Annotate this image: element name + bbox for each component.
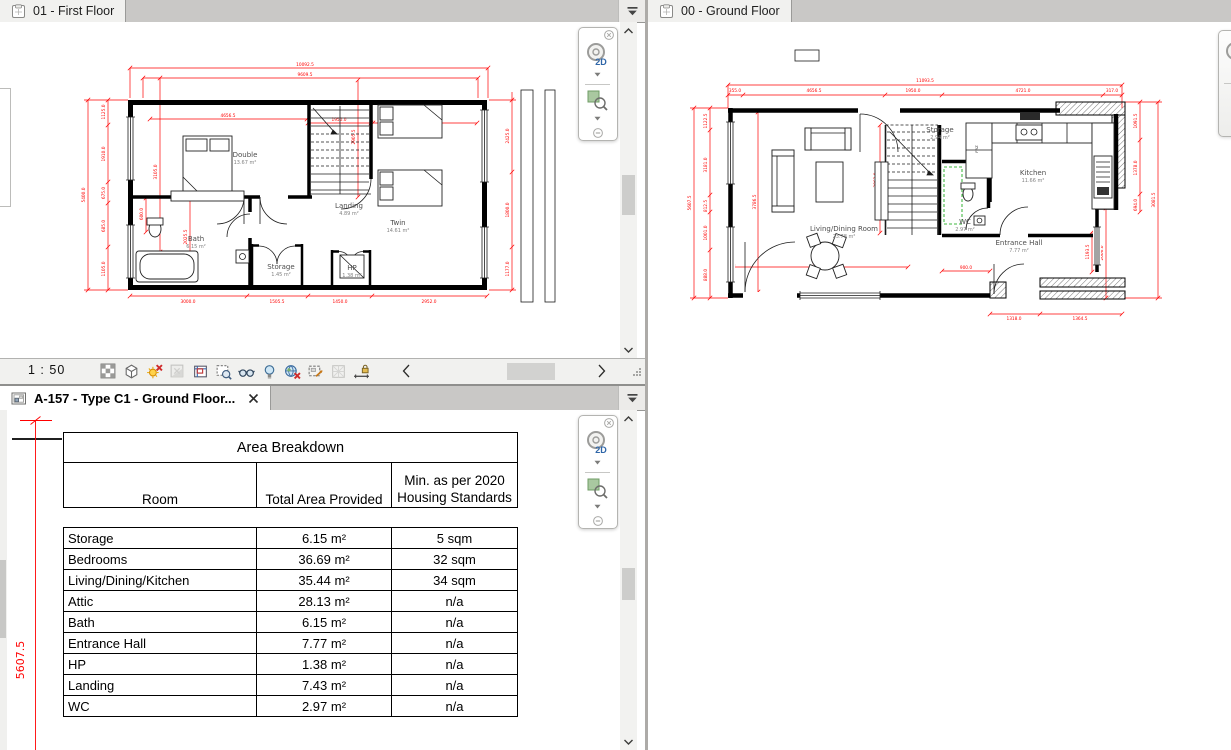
scroll-thumb[interactable]	[622, 175, 635, 215]
room-area: 4.89 m²	[339, 211, 359, 217]
pan-left-icon[interactable]	[402, 364, 410, 378]
navbar-close-icon[interactable]	[604, 30, 614, 40]
room-label: Storage	[926, 126, 953, 134]
view-tab-menu-button[interactable]	[618, 386, 645, 410]
steering-wheel-2d-icon[interactable]: 2D	[584, 41, 611, 68]
temporary-hide-isolate-icon[interactable]	[238, 363, 255, 380]
detail-level-icon[interactable]	[100, 363, 117, 380]
room-label: Entrance Hall	[995, 239, 1042, 247]
room-label: Twin	[389, 219, 405, 227]
dim-text: 4656.5	[220, 113, 235, 119]
dim-text: 1450.0	[332, 299, 347, 305]
tab-label: A-157 - Type C1 - Ground Floor...	[34, 391, 235, 406]
tab-list-icon	[627, 393, 638, 403]
navbar-separator	[585, 472, 610, 473]
col-header-min: Min. as per 2020 Housing Standards	[392, 463, 518, 508]
tab-first-floor[interactable]: 01 - First Floor	[0, 0, 126, 22]
room-area: 11.66 m²	[1022, 178, 1045, 184]
tab-list-icon	[627, 6, 638, 16]
dim-text: 2425.0	[505, 128, 511, 143]
tab-label: 00 - Ground Floor	[681, 4, 780, 18]
room-label: Living/Dining Room	[810, 225, 878, 233]
dim-text: 3081.5	[1151, 192, 1157, 207]
reveal-hidden-elements-icon[interactable]	[261, 363, 278, 380]
dim-text: 812.5	[703, 200, 709, 213]
dim-text: 3786.5	[752, 194, 758, 209]
reveal-constraints-icon[interactable]	[353, 363, 370, 380]
hidden-panel-edge	[0, 88, 11, 207]
col-header-room: Room	[64, 463, 257, 508]
dim-text: 1001.0	[703, 225, 709, 240]
wheel-menu-caret-icon[interactable]	[594, 72, 601, 77]
room-label: Bath	[188, 235, 204, 243]
area-breakdown-header-table: Area Breakdown Room Total Area Provided …	[63, 432, 518, 508]
floor-plan-view-icon	[659, 4, 674, 19]
room-area: 13.67 m²	[234, 160, 257, 166]
table-row: WC 2.97 m² n/a	[64, 696, 518, 717]
dim-text: 11093.5	[916, 78, 934, 84]
area-breakdown-body-table: Storage 6.15 m² 5 sqm Bedrooms 36.69 m² …	[63, 527, 518, 717]
resize-grip-icon[interactable]	[632, 367, 642, 377]
ground-floor-tabbar: 00 - Ground Floor	[648, 0, 1231, 23]
dim-text: 1122.5	[703, 113, 709, 128]
dim-text: 3181.0	[703, 157, 709, 172]
scroll-up-icon[interactable]	[620, 22, 637, 39]
dim-text: 888.0	[703, 269, 709, 282]
dim-text: 1950.0	[905, 88, 920, 94]
room-area: 14.61 m²	[387, 228, 410, 234]
dim-text: 3105.0	[153, 164, 159, 179]
table-row: Bath 6.15 m² n/a	[64, 612, 518, 633]
dim-text: 317.0	[1106, 88, 1119, 94]
navbar-separator	[585, 84, 610, 85]
sheet-view-icon	[11, 391, 27, 406]
table-row: Attic 28.13 m² n/a	[64, 591, 518, 612]
floor-plan-view-icon	[11, 4, 26, 19]
table-row: Landing 7.43 m² n/a	[64, 675, 518, 696]
dim-text: 900.0	[960, 265, 973, 271]
room-area: 7.77 m²	[1009, 248, 1029, 254]
table-row: Living/Dining/Kitchen 35.44 m² 34 sqm	[64, 570, 518, 591]
zoom-menu-caret-icon[interactable]	[594, 116, 601, 121]
dim-text: 1193.5	[1085, 244, 1091, 259]
crop-view-icon[interactable]	[192, 363, 209, 380]
dim-text: 1177.0	[505, 261, 511, 276]
scroll-thumb[interactable]	[622, 568, 635, 600]
ground-floor-plan-drawing: .wl2{stroke:#000;fill:none} .tn2{stroke:…	[648, 22, 1231, 750]
ground-floor-canvas[interactable]: .wl2{stroke:#000;fill:none} .tn2{stroke:…	[648, 22, 1231, 750]
room-label: HP	[347, 264, 357, 272]
dim-text: 10092.5	[296, 62, 314, 68]
dim-text: 685.0	[101, 220, 107, 233]
zoom-region-icon[interactable]	[587, 478, 608, 499]
zoom-menu-caret-icon[interactable]	[594, 504, 601, 509]
pan-right-icon[interactable]	[598, 364, 606, 378]
wheel-menu-caret-icon[interactable]	[594, 460, 601, 465]
first-floor-tabbar: 01 - First Floor	[0, 0, 645, 23]
navbar-collapse-icon[interactable]	[593, 516, 603, 526]
room-area: 2.97 m²	[955, 227, 975, 233]
sheet-vscrollbar[interactable]	[620, 410, 637, 750]
navbar-collapse-icon[interactable]	[593, 128, 603, 138]
sheet-tabbar: A-157 - Type C1 - Ground Floor...	[0, 386, 645, 411]
dim-text: 1091.5	[1133, 113, 1139, 128]
scroll-down-icon[interactable]	[620, 733, 637, 750]
dim-text: 5400.0	[81, 187, 87, 202]
steering-wheel-2d-icon[interactable]: 2D	[584, 429, 611, 456]
room-area: 1.38 m²	[342, 273, 362, 279]
room-label: WC	[959, 218, 971, 226]
table-title: Area Breakdown	[64, 433, 518, 463]
svg-text:2D: 2D	[595, 445, 607, 455]
sheet-dim-text: 5607.5	[14, 641, 27, 680]
navigation-bar-partial[interactable]	[1218, 30, 1231, 137]
scroll-up-icon[interactable]	[620, 410, 637, 427]
col-header-total: Total Area Provided	[257, 463, 392, 508]
first-floor-vscrollbar[interactable]	[620, 22, 637, 358]
navbar-separator	[1224, 83, 1231, 84]
fridge-label: FRZ	[974, 145, 979, 153]
table-row: Entrance Hall 7.77 m² n/a	[64, 633, 518, 654]
dim-text: 1378.0	[1133, 160, 1139, 175]
table-row: HP 1.38 m² n/a	[64, 654, 518, 675]
steering-wheel-2d-icon	[1219, 39, 1231, 79]
dim-text: 9609.5	[297, 72, 312, 78]
room-area: 23.78 m²	[833, 234, 856, 240]
shadows-icon[interactable]	[169, 363, 186, 380]
background-window-scrollbar	[0, 410, 7, 750]
room-area: 1.45 m²	[271, 272, 291, 278]
view-tab-menu-button[interactable]	[618, 0, 645, 22]
view-control-bar: 1 : 50	[0, 358, 645, 384]
dim-text: 1318.0	[1006, 316, 1021, 322]
first-floor-plan-drawing: .wl{stroke:#000;fill:none} .tn{stroke:#1…	[0, 22, 620, 358]
dim-text: 355.0	[729, 88, 742, 94]
room-label: Storage	[267, 263, 294, 271]
hscroll-thumb[interactable]	[507, 363, 555, 380]
room-area: 6.15 m²	[186, 244, 206, 250]
room-label: Kitchen	[1020, 169, 1046, 177]
temporary-view-properties-icon[interactable]	[307, 363, 324, 380]
table-row: Storage 6.15 m² 5 sqm	[64, 528, 518, 549]
dim-text: 3000.0	[180, 299, 195, 305]
revit-workspace: 01 - First Floor .wl{stroke:#000;fill:no…	[0, 0, 1231, 750]
tab-label: 01 - First Floor	[33, 4, 114, 18]
room-label: Landing	[335, 202, 363, 210]
analytical-model-icon[interactable]	[330, 363, 347, 380]
tab-close-icon[interactable]	[248, 393, 259, 404]
panel-ground-floor: 00 - Ground Floor .wl2{stroke:#000;fill:…	[648, 0, 1231, 750]
background-scroll-thumb	[0, 560, 6, 638]
worksharing-display-icon[interactable]	[284, 363, 301, 380]
dim-text: 1125.0	[101, 104, 107, 119]
dim-text: 694.0	[1133, 199, 1139, 212]
visual-style-icon[interactable]	[123, 363, 140, 380]
zoom-region-icon[interactable]	[587, 90, 608, 111]
table-row: Bedrooms 36.69 m² 32 sqm	[64, 549, 518, 570]
room-label: Double	[233, 151, 258, 159]
panel-sheet: A-157 - Type C1 - Ground Floor... 5607.5	[0, 386, 645, 750]
dim-text: 1800.0	[505, 202, 511, 217]
show-crop-region-icon[interactable]	[215, 363, 232, 380]
dim-text: 675.0	[101, 187, 107, 200]
dim-text: 600.0	[139, 208, 145, 221]
dim-text: 5607.5	[687, 195, 693, 210]
dim-text: 4656.5	[806, 88, 821, 94]
dim-text: 2952.0	[421, 299, 436, 305]
svg-text:2D: 2D	[595, 57, 607, 67]
room-area: 2.94 m²	[930, 135, 950, 141]
scroll-down-icon[interactable]	[620, 341, 637, 358]
sun-path-icon[interactable]	[146, 363, 163, 380]
panel-first-floor: 01 - First Floor .wl{stroke:#000;fill:no…	[0, 0, 645, 384]
tab-sheet-a157[interactable]: A-157 - Type C1 - Ground Floor...	[0, 386, 271, 410]
sheet-canvas[interactable]: 5607.5 Area Breakdown Room Total Area Pr…	[0, 410, 620, 750]
tab-ground-floor[interactable]: 00 - Ground Floor	[648, 0, 792, 22]
navigation-bar: 2D	[578, 415, 618, 529]
dim-text: 1364.5	[1072, 316, 1087, 322]
dim-text: 1105.0	[101, 261, 107, 276]
navigation-bar: 2D	[578, 27, 618, 141]
dim-text: 1505.5	[269, 299, 284, 305]
dim-text: 1910.0	[101, 146, 107, 161]
dim-text: 4721.0	[1015, 88, 1030, 94]
first-floor-canvas[interactable]: .wl{stroke:#000;fill:none} .tn{stroke:#1…	[0, 22, 620, 358]
scale-button[interactable]: 1 : 50	[28, 363, 65, 377]
navbar-close-icon[interactable]	[604, 418, 614, 428]
